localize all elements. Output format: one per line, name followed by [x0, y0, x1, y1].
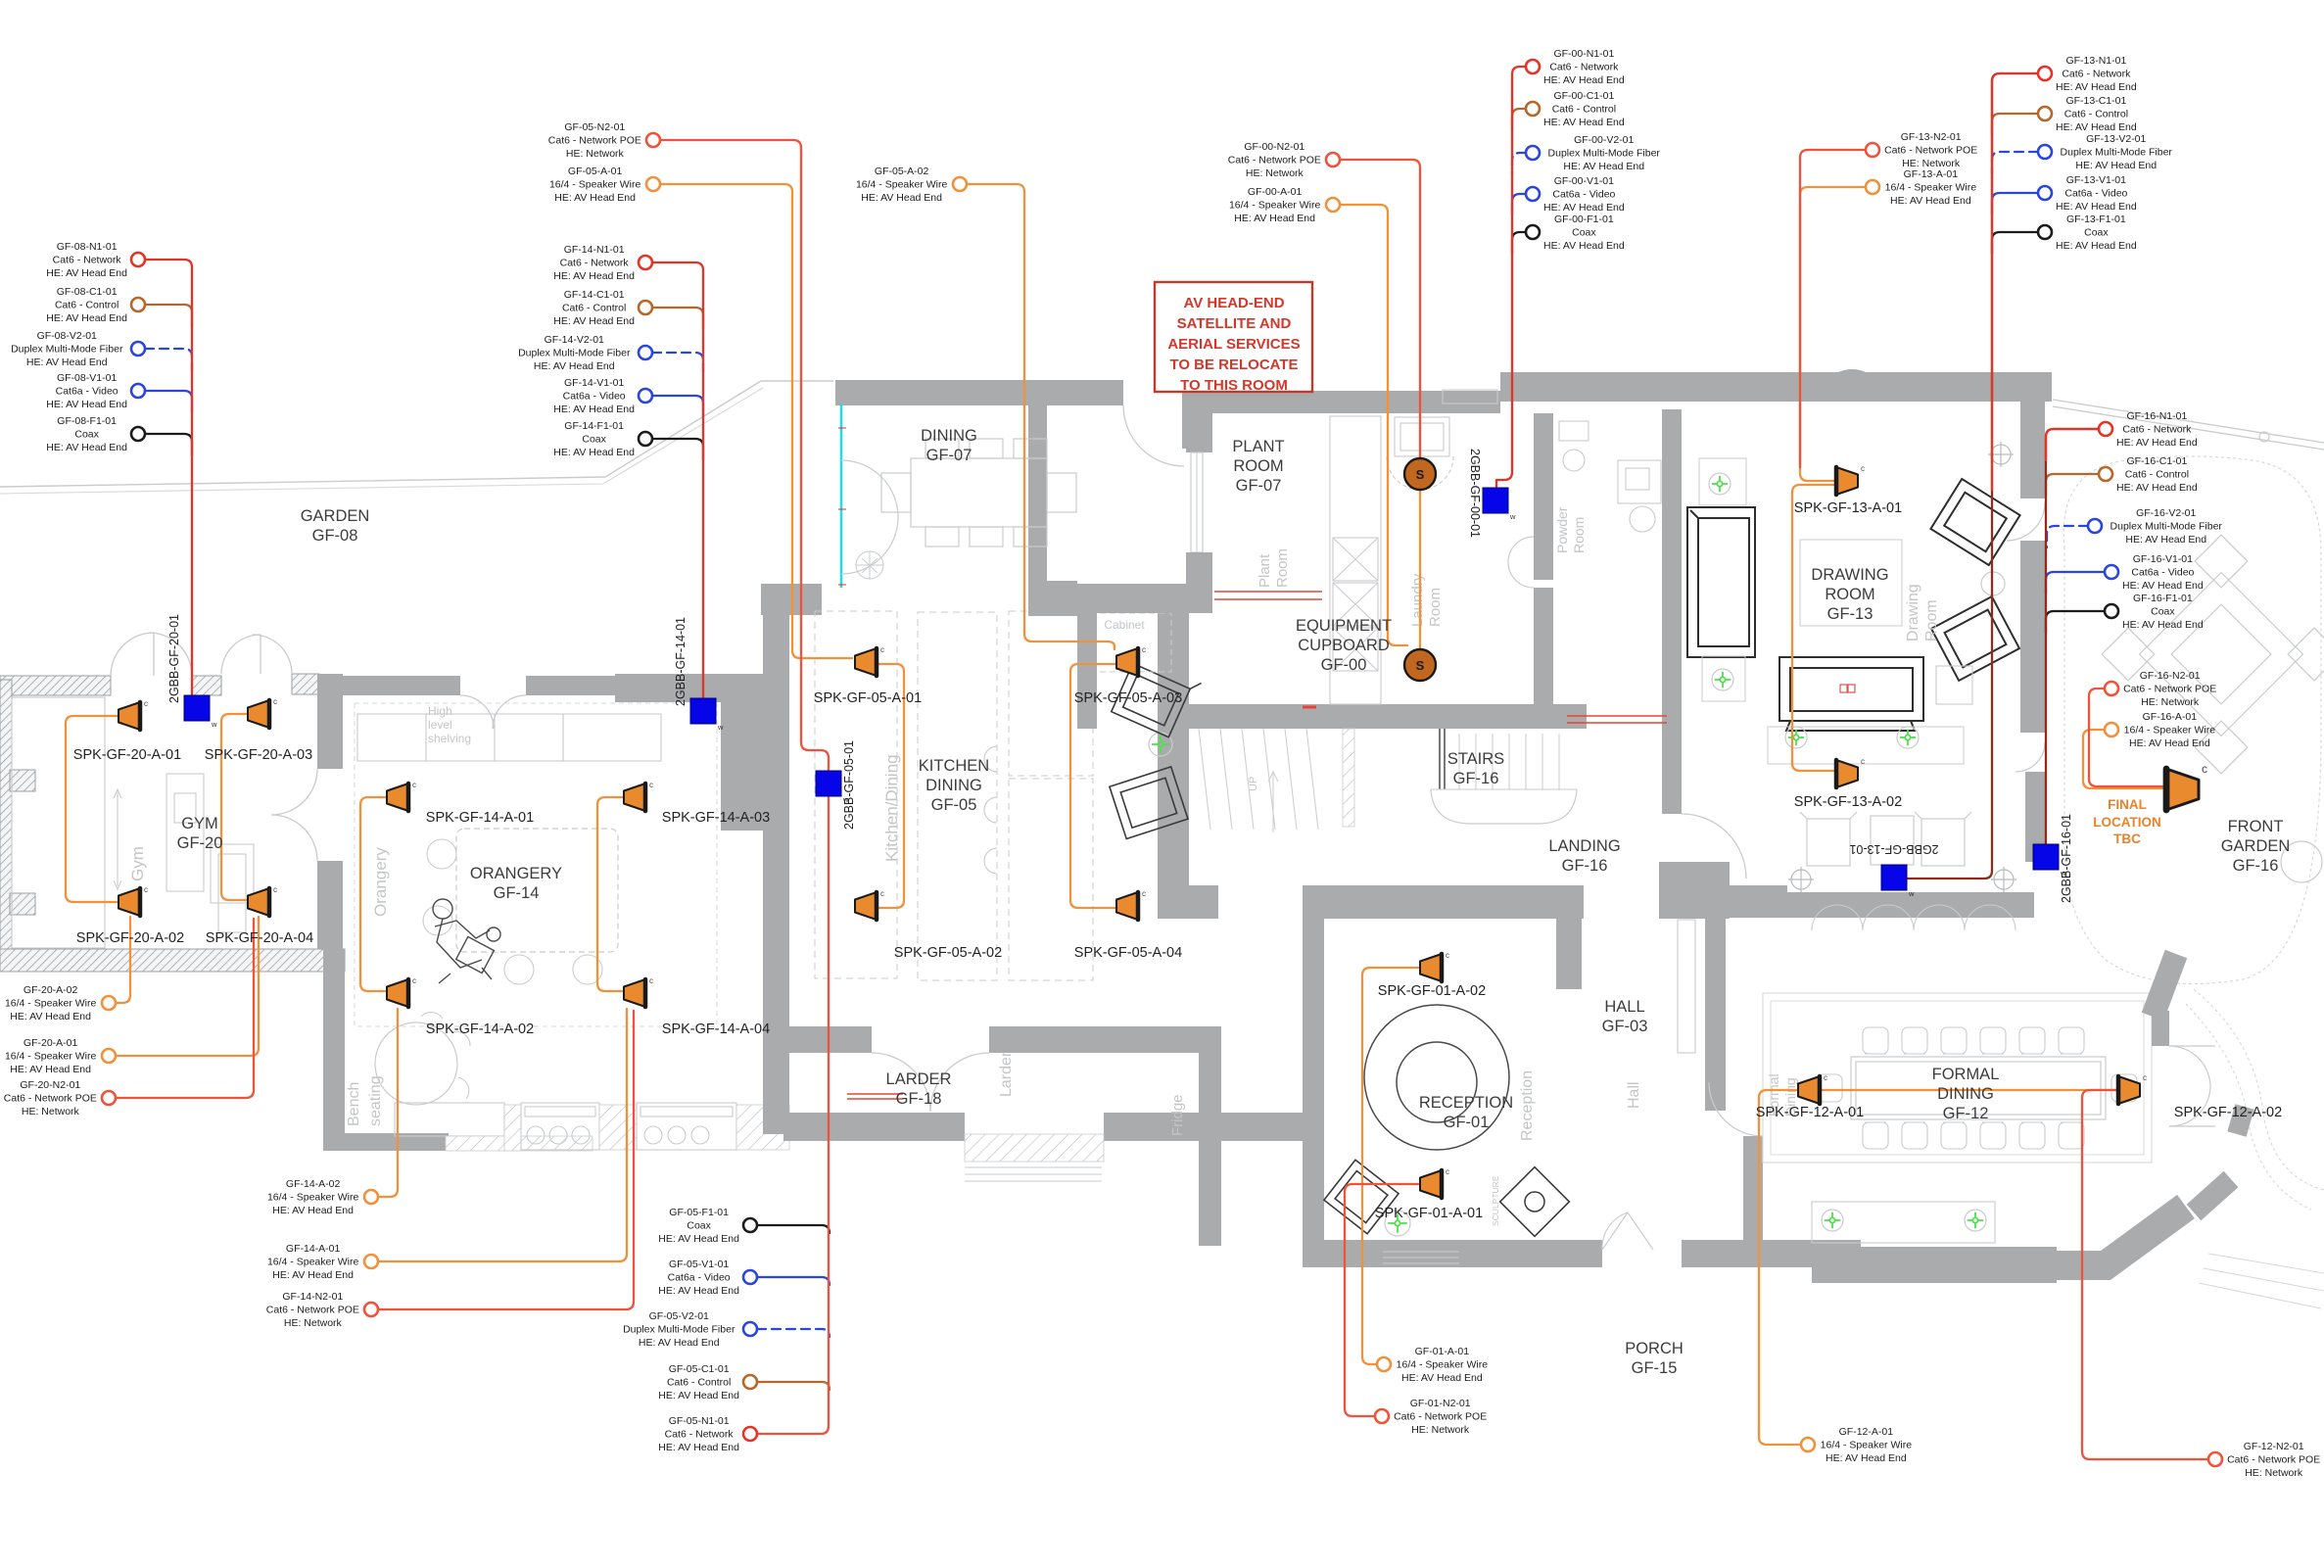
svg-text:GF-12-N2-01: GF-12-N2-01 — [2244, 1441, 2304, 1452]
svg-text:c: c — [273, 697, 277, 706]
svg-text:LARDER: LARDER — [886, 1070, 952, 1088]
svg-text:HE: AV Head End: HE: AV Head End — [554, 192, 636, 204]
svg-text:c: c — [1861, 464, 1865, 473]
svg-text:Powder: Powder — [1554, 506, 1570, 553]
svg-text:Reception: Reception — [1519, 1070, 1536, 1141]
svg-text:16/4 - Speaker Wire: 16/4 - Speaker Wire — [267, 1257, 359, 1268]
svg-text:LOCATION: LOCATION — [2093, 815, 2161, 830]
svg-text:GF-08-V2-01: GF-08-V2-01 — [37, 330, 97, 342]
svg-text:GF-00-C1-01: GF-00-C1-01 — [1553, 90, 1614, 102]
svg-text:GF-14-C1-01: GF-14-C1-01 — [564, 289, 625, 301]
svg-text:Room: Room — [1274, 548, 1291, 588]
svg-text:Bench: Bench — [346, 1082, 362, 1126]
svg-text:Cat6 - Network: Cat6 - Network — [53, 255, 122, 266]
svg-text:Duplex Multi-Mode Fiber: Duplex Multi-Mode Fiber — [2061, 147, 2173, 159]
svg-text:HE: AV Head End: HE: AV Head End — [534, 360, 615, 372]
svg-text:2GBB-GF-16-01: 2GBB-GF-16-01 — [2060, 814, 2073, 903]
svg-text:SPK-GF-12-A-01: SPK-GF-12-A-01 — [1756, 1105, 1864, 1120]
svg-text:HE: Network: HE: Network — [2141, 696, 2200, 708]
svg-text:TO BE RELOCATE: TO BE RELOCATE — [1169, 356, 1298, 373]
svg-text:GARDEN: GARDEN — [2221, 837, 2291, 855]
svg-text:SPK-GF-20-A-03: SPK-GF-20-A-03 — [205, 747, 312, 763]
svg-text:c: c — [649, 976, 653, 985]
svg-text:HE: AV Head End: HE: AV Head End — [1563, 161, 1644, 172]
svg-text:GF-12-A-01: GF-12-A-01 — [1839, 1426, 1894, 1438]
svg-text:GF-08: GF-08 — [312, 527, 358, 545]
svg-text:GF-14-A-01: GF-14-A-01 — [286, 1243, 341, 1255]
svg-text:Room: Room — [1571, 517, 1587, 553]
svg-text:16/4 - Speaker Wire: 16/4 - Speaker Wire — [1885, 182, 1977, 194]
svg-text:SPK-GF-05-A-01: SPK-GF-05-A-01 — [814, 690, 922, 706]
svg-text:RECEPTION: RECEPTION — [1419, 1094, 1513, 1112]
svg-text:HE: Network: HE: Network — [1411, 1424, 1470, 1436]
svg-text:GYM: GYM — [181, 815, 218, 832]
svg-text:Gym: Gym — [128, 846, 147, 881]
svg-text:HE: AV Head End: HE: AV Head End — [1826, 1452, 1907, 1464]
svg-text:EQUIPMENT: EQUIPMENT — [1296, 617, 1392, 635]
svg-text:16/4 - Speaker Wire: 16/4 - Speaker Wire — [1821, 1440, 1913, 1451]
svg-text:Cat6 - Network: Cat6 - Network — [1549, 62, 1619, 73]
svg-text:GF-05-N2-01: GF-05-N2-01 — [564, 121, 625, 133]
svg-text:GF-05-V2-01: GF-05-V2-01 — [649, 1310, 709, 1322]
svg-text:DRAWING: DRAWING — [1811, 566, 1888, 584]
svg-text:HE: AV Head End: HE: AV Head End — [2056, 81, 2137, 93]
svg-text:GF-13-V1-01: GF-13-V1-01 — [2066, 174, 2126, 186]
svg-text:GF-14-A-02: GF-14-A-02 — [286, 1178, 341, 1190]
svg-text:GF-13-N2-01: GF-13-N2-01 — [1901, 131, 1962, 143]
svg-text:Cat6 - Network: Cat6 - Network — [2062, 69, 2131, 80]
svg-text:Cat6 - Network POE: Cat6 - Network POE — [266, 1305, 359, 1316]
svg-text:GF-05: GF-05 — [931, 796, 977, 814]
svg-text:16/4 - Speaker Wire: 16/4 - Speaker Wire — [1397, 1359, 1489, 1371]
svg-text:GF-13-N1-01: GF-13-N1-01 — [2065, 55, 2126, 67]
svg-text:Cat6a - Video: Cat6a - Video — [56, 386, 119, 398]
svg-text:SPK-GF-20-A-01: SPK-GF-20-A-01 — [73, 747, 181, 763]
svg-text:GF-05-F1-01: GF-05-F1-01 — [669, 1207, 729, 1218]
svg-text:GF-18: GF-18 — [896, 1090, 942, 1108]
svg-text:16/4 - Speaker Wire: 16/4 - Speaker Wire — [5, 1051, 97, 1063]
svg-text:HE: AV Head End: HE: AV Head End — [2056, 240, 2137, 252]
svg-text:HE: AV Head End: HE: AV Head End — [553, 315, 635, 327]
svg-text:GF-20-A-02: GF-20-A-02 — [24, 984, 78, 996]
svg-text:GF-13-V2-01: GF-13-V2-01 — [2086, 133, 2146, 145]
svg-text:2GBB-GF-13-01: 2GBB-GF-13-01 — [1849, 842, 1938, 856]
svg-text:w: w — [211, 720, 217, 729]
svg-text:S: S — [1416, 467, 1425, 482]
svg-text:Duplex Multi-Mode Fiber: Duplex Multi-Mode Fiber — [623, 1324, 735, 1336]
svg-text:SPK-GF-05-A-04: SPK-GF-05-A-04 — [1074, 945, 1182, 961]
svg-text:Cat6a - Video: Cat6a - Video — [668, 1272, 731, 1284]
svg-text:HE: AV Head End: HE: AV Head End — [658, 1442, 739, 1453]
svg-text:HE: AV Head End: HE: AV Head End — [1543, 74, 1625, 86]
svg-text:HE: AV Head End: HE: AV Head End — [46, 267, 127, 279]
svg-text:S: S — [1416, 658, 1425, 673]
svg-text:Coax: Coax — [687, 1220, 711, 1232]
svg-text:Cat6a - Video: Cat6a - Video — [2131, 567, 2194, 579]
svg-text:HE: AV Head End: HE: AV Head End — [2075, 160, 2157, 171]
svg-text:AERIAL SERVICES: AERIAL SERVICES — [1167, 336, 1300, 353]
svg-text:GF-08-C1-01: GF-08-C1-01 — [57, 286, 118, 298]
svg-text:HE: AV Head End: HE: AV Head End — [1543, 202, 1625, 214]
svg-text:Cat6a - Video: Cat6a - Video — [2064, 188, 2127, 200]
svg-text:HE: AV Head End: HE: AV Head End — [2122, 619, 2204, 631]
svg-text:GF-01-N2-01: GF-01-N2-01 — [1410, 1398, 1471, 1409]
svg-text:Duplex Multi-Mode Fiber: Duplex Multi-Mode Fiber — [1548, 148, 1661, 160]
svg-text:Larder: Larder — [998, 1051, 1015, 1097]
svg-text:Coax: Coax — [2084, 227, 2109, 239]
svg-text:HE: AV Head End: HE: AV Head End — [10, 1064, 91, 1075]
svg-text:c: c — [880, 645, 884, 654]
svg-text:c: c — [2143, 1073, 2147, 1082]
svg-text:GF-14-F1-01: GF-14-F1-01 — [564, 420, 624, 432]
svg-text:GF-08-F1-01: GF-08-F1-01 — [57, 415, 117, 427]
svg-text:SPK-GF-20-A-02: SPK-GF-20-A-02 — [76, 930, 184, 946]
svg-text:SPK-GF-14-A-03: SPK-GF-14-A-03 — [662, 810, 770, 826]
svg-text:SPK-GF-13-A-01: SPK-GF-13-A-01 — [1794, 500, 1902, 516]
svg-text:Room: Room — [1427, 588, 1444, 627]
svg-text:Cat6 - Control: Cat6 - Control — [1552, 104, 1616, 116]
svg-text:HE: AV Head End: HE: AV Head End — [658, 1285, 739, 1297]
svg-text:Cabinet: Cabinet — [1104, 618, 1145, 632]
svg-text:DINING: DINING — [921, 427, 977, 445]
svg-text:c: c — [1446, 951, 1449, 960]
svg-text:c: c — [1446, 1167, 1449, 1176]
svg-text:GF-00-A-01: GF-00-A-01 — [1248, 186, 1303, 198]
svg-text:Hall: Hall — [1626, 1081, 1642, 1109]
svg-text:SPK-GF-05-A-02: SPK-GF-05-A-02 — [894, 945, 1002, 961]
svg-text:GF-05-C1-01: GF-05-C1-01 — [669, 1363, 730, 1375]
svg-text:GF-05-A-01: GF-05-A-01 — [568, 166, 623, 177]
svg-text:GF-03: GF-03 — [1602, 1018, 1648, 1035]
svg-text:LANDING: LANDING — [1548, 837, 1620, 855]
svg-text:Cat6a - Video: Cat6a - Video — [563, 391, 626, 403]
svg-text:GF-00-F1-01: GF-00-F1-01 — [1554, 214, 1614, 225]
svg-text:Coax: Coax — [582, 434, 606, 446]
svg-text:Drawing: Drawing — [1905, 584, 1921, 641]
svg-text:HE: AV Head End: HE: AV Head End — [2125, 534, 2206, 546]
svg-text:GF-16-V1-01: GF-16-V1-01 — [2133, 553, 2193, 565]
svg-text:Kitchen/Dining: Kitchen/Dining — [882, 754, 901, 862]
svg-text:DINING: DINING — [925, 777, 982, 794]
svg-text:2GBB-GF-14-01: 2GBB-GF-14-01 — [674, 617, 688, 706]
svg-text:HE: AV Head End: HE: AV Head End — [639, 1337, 720, 1349]
svg-text:HE: AV Head End: HE: AV Head End — [1890, 195, 1971, 207]
svg-text:c: c — [144, 699, 148, 708]
svg-text:SPK-GF-14-A-02: SPK-GF-14-A-02 — [426, 1022, 534, 1037]
svg-text:HE: Network: HE: Network — [284, 1317, 343, 1329]
svg-text:SPK-GF-01-A-01: SPK-GF-01-A-01 — [1375, 1206, 1483, 1221]
svg-text:GF-16: GF-16 — [2233, 857, 2279, 875]
svg-text:GF-01-A-01: GF-01-A-01 — [1415, 1346, 1470, 1357]
svg-text:GF-01: GF-01 — [1444, 1114, 1490, 1131]
svg-text:c: c — [1861, 757, 1865, 766]
svg-text:HE: AV Head End: HE: AV Head End — [2122, 580, 2204, 592]
svg-text:shelving: shelving — [428, 732, 471, 745]
svg-text:c: c — [1824, 1073, 1827, 1082]
svg-text:HALL: HALL — [1604, 998, 1644, 1016]
svg-text:GF-07: GF-07 — [926, 447, 972, 464]
svg-text:GF-20: GF-20 — [177, 834, 223, 852]
svg-text:w: w — [1509, 512, 1516, 521]
svg-text:Orangery: Orangery — [371, 847, 390, 917]
svg-text:CUPBOARD: CUPBOARD — [1298, 637, 1390, 654]
svg-text:SCULPTURE: SCULPTURE — [1491, 1175, 1500, 1226]
svg-text:GF-20-N2-01: GF-20-N2-01 — [20, 1079, 80, 1091]
svg-text:GF-16-A-01: GF-16-A-01 — [2143, 711, 2198, 723]
svg-text:Coax: Coax — [1572, 227, 1596, 239]
svg-text:ORANGERY: ORANGERY — [470, 865, 562, 882]
svg-text:Cat6 - Network POE: Cat6 - Network POE — [4, 1093, 97, 1105]
svg-text:Cat6 - Network: Cat6 - Network — [665, 1429, 735, 1441]
svg-text:16/4 - Speaker Wire: 16/4 - Speaker Wire — [267, 1192, 359, 1204]
svg-text:16/4 - Speaker Wire: 16/4 - Speaker Wire — [1229, 200, 1321, 212]
svg-text:seating: seating — [367, 1075, 384, 1126]
svg-text:HE: AV Head End: HE: AV Head End — [272, 1205, 354, 1216]
svg-text:SATELLITE AND: SATELLITE AND — [1177, 315, 1292, 332]
svg-text:Cat6 - Network POE: Cat6 - Network POE — [2123, 684, 2216, 695]
svg-text:Room: Room — [1923, 599, 1940, 641]
svg-text:c: c — [412, 976, 416, 985]
svg-text:Cat6 - Control: Cat6 - Control — [562, 303, 626, 314]
svg-text:2GBB-GF-05-01: 2GBB-GF-05-01 — [842, 740, 856, 830]
svg-text:HE: AV Head End: HE: AV Head End — [553, 404, 635, 415]
svg-text:GF-16-C1-01: GF-16-C1-01 — [2126, 455, 2187, 467]
svg-text:Fridge: Fridge — [1169, 1094, 1186, 1136]
svg-text:GF-00-V1-01: GF-00-V1-01 — [1554, 175, 1614, 187]
svg-text:GF-00-N2-01: GF-00-N2-01 — [1244, 141, 1304, 153]
svg-text:c: c — [649, 781, 653, 789]
svg-text:GARDEN: GARDEN — [301, 507, 370, 525]
svg-text:16/4 - Speaker Wire: 16/4 - Speaker Wire — [2124, 725, 2216, 736]
svg-text:GF-14-N2-01: GF-14-N2-01 — [282, 1291, 343, 1303]
svg-text:c: c — [880, 889, 884, 898]
svg-text:GF-14-N1-01: GF-14-N1-01 — [564, 244, 625, 256]
svg-text:GF-15: GF-15 — [1632, 1359, 1678, 1377]
svg-text:DINING: DINING — [1937, 1085, 1994, 1103]
svg-text:HE: AV Head End: HE: AV Head End — [1543, 117, 1625, 128]
svg-text:GF-00-V2-01: GF-00-V2-01 — [1574, 134, 1634, 146]
svg-text:GF-16-N2-01: GF-16-N2-01 — [2140, 670, 2201, 682]
svg-text:HE: AV Head End: HE: AV Head End — [658, 1233, 739, 1245]
svg-text:HE: Network: HE: Network — [1246, 167, 1304, 179]
svg-text:16/4 - Speaker Wire: 16/4 - Speaker Wire — [549, 179, 641, 191]
svg-text:HE: AV Head End: HE: AV Head End — [2056, 201, 2137, 213]
svg-text:FRONT: FRONT — [2228, 818, 2284, 835]
svg-text:HE: AV Head End: HE: AV Head End — [553, 447, 635, 458]
svg-text:SPK-GF-13-A-02: SPK-GF-13-A-02 — [1794, 794, 1902, 810]
svg-text:High: High — [428, 704, 452, 718]
svg-text:Cat6 - Network POE: Cat6 - Network POE — [548, 135, 641, 147]
svg-text:SPK-GF-20-A-04: SPK-GF-20-A-04 — [206, 930, 313, 946]
svg-text:Duplex Multi-Mode Fiber: Duplex Multi-Mode Fiber — [518, 348, 631, 359]
svg-text:GF-16: GF-16 — [1453, 770, 1499, 787]
svg-text:2GBB-GF-00-01: 2GBB-GF-00-01 — [1468, 449, 1482, 538]
svg-text:Cat6 - Control: Cat6 - Control — [55, 300, 119, 311]
svg-text:ROOM: ROOM — [1233, 457, 1283, 475]
svg-text:w: w — [717, 723, 724, 732]
svg-text:HE: AV Head End: HE: AV Head End — [1543, 240, 1625, 252]
svg-text:SPK-GF-05-A-03: SPK-GF-05-A-03 — [1074, 690, 1182, 706]
svg-text:Cat6 - Network: Cat6 - Network — [2122, 424, 2192, 436]
svg-text:GF-14-V2-01: GF-14-V2-01 — [545, 334, 604, 346]
svg-text:Duplex Multi-Mode Fiber: Duplex Multi-Mode Fiber — [11, 344, 123, 356]
svg-text:HE: Network: HE: Network — [566, 148, 625, 160]
svg-text:16/4 - Speaker Wire: 16/4 - Speaker Wire — [856, 179, 948, 191]
svg-text:c: c — [273, 885, 277, 894]
svg-text:Cat6 - Network POE: Cat6 - Network POE — [1884, 145, 1977, 157]
svg-text:GF-16-N1-01: GF-16-N1-01 — [2126, 410, 2187, 422]
svg-text:HE: AV Head End: HE: AV Head End — [46, 312, 127, 324]
svg-text:PLANT: PLANT — [1232, 438, 1284, 455]
svg-text:GF-05-A-02: GF-05-A-02 — [875, 166, 929, 177]
svg-text:GF-13: GF-13 — [1827, 605, 1873, 623]
svg-text:HE: AV Head End: HE: AV Head End — [1401, 1372, 1483, 1384]
svg-text:KITCHEN: KITCHEN — [919, 757, 989, 775]
svg-text:GF-05-V1-01: GF-05-V1-01 — [669, 1259, 729, 1270]
svg-text:SPK-GF-01-A-02: SPK-GF-01-A-02 — [1378, 983, 1486, 999]
svg-text:HE: AV Head End: HE: AV Head End — [1234, 213, 1315, 224]
svg-text:HE: AV Head End: HE: AV Head End — [26, 356, 108, 368]
svg-text:GF-16-V2-01: GF-16-V2-01 — [2136, 507, 2196, 519]
svg-text:Plant: Plant — [1257, 553, 1273, 588]
svg-text:HE: AV Head End: HE: AV Head End — [2056, 121, 2137, 133]
svg-text:HE: AV Head End: HE: AV Head End — [2116, 482, 2198, 494]
svg-text:AV HEAD-END: AV HEAD-END — [1183, 295, 1284, 311]
svg-text:Cat6a - Video: Cat6a - Video — [1552, 189, 1615, 201]
svg-text:level: level — [428, 718, 452, 732]
svg-text:Cat6 - Control: Cat6 - Control — [667, 1377, 731, 1389]
svg-text:Coax: Coax — [74, 429, 99, 441]
svg-text:GF-20-A-01: GF-20-A-01 — [24, 1037, 78, 1049]
svg-text:2GBB-GF-20-01: 2GBB-GF-20-01 — [167, 614, 181, 703]
svg-text:GF-12: GF-12 — [1943, 1105, 1989, 1122]
svg-text:HE: Network: HE: Network — [22, 1106, 80, 1117]
svg-text:GF-00: GF-00 — [1321, 656, 1367, 674]
svg-text:FORMAL: FORMAL — [1932, 1066, 2000, 1083]
svg-text:HE: AV Head End: HE: AV Head End — [2116, 437, 2198, 449]
svg-text:HE: AV Head End: HE: AV Head End — [46, 442, 127, 453]
svg-text:Duplex Multi-Mode Fiber: Duplex Multi-Mode Fiber — [2111, 521, 2223, 533]
svg-text:FINAL: FINAL — [2108, 797, 2147, 812]
svg-text:GF-16-F1-01: GF-16-F1-01 — [2133, 593, 2193, 604]
svg-text:SPK-GF-12-A-02: SPK-GF-12-A-02 — [2174, 1105, 2282, 1120]
svg-text:HE: AV Head End: HE: AV Head End — [10, 1011, 91, 1022]
svg-text:SPK-GF-14-A-01: SPK-GF-14-A-01 — [426, 810, 534, 826]
svg-text:Laundry: Laundry — [1409, 573, 1426, 627]
svg-text:GF-14-V1-01: GF-14-V1-01 — [564, 377, 624, 389]
svg-text:SPK-GF-14-A-04: SPK-GF-14-A-04 — [662, 1022, 770, 1037]
svg-text:HE: AV Head End: HE: AV Head End — [658, 1390, 739, 1402]
svg-text:Cat6 - Control: Cat6 - Control — [2125, 469, 2189, 481]
svg-text:GF-14: GF-14 — [494, 884, 540, 902]
svg-text:GF-16: GF-16 — [1562, 857, 1608, 875]
svg-text:w: w — [1908, 889, 1915, 898]
svg-text:Cat6 - Control: Cat6 - Control — [2064, 109, 2128, 120]
svg-text:c: c — [2202, 762, 2207, 776]
svg-text:GF-05-N1-01: GF-05-N1-01 — [669, 1415, 730, 1427]
svg-text:Cat6 - Network: Cat6 - Network — [560, 258, 630, 269]
svg-text:GF-00-N1-01: GF-00-N1-01 — [1553, 48, 1614, 60]
svg-text:Cat6 - Network POE: Cat6 - Network POE — [2227, 1454, 2320, 1466]
svg-text:HE: AV Head End: HE: AV Head End — [553, 270, 635, 282]
svg-text:Cat6 - Network POE: Cat6 - Network POE — [1394, 1411, 1487, 1423]
svg-text:GF-13-C1-01: GF-13-C1-01 — [2065, 95, 2126, 107]
svg-text:TBC: TBC — [2113, 832, 2141, 846]
svg-text:GF-13-F1-01: GF-13-F1-01 — [2066, 214, 2126, 225]
svg-text:c: c — [1142, 645, 1146, 654]
svg-text:ROOM: ROOM — [1825, 586, 1874, 603]
svg-text:c: c — [412, 781, 416, 789]
svg-text:HE: AV Head End: HE: AV Head End — [46, 399, 127, 410]
svg-text:GF-08-V1-01: GF-08-V1-01 — [57, 372, 117, 384]
svg-text:GF-13-A-01: GF-13-A-01 — [1904, 168, 1959, 180]
svg-text:HE: AV Head End: HE: AV Head End — [272, 1269, 354, 1281]
svg-text:UP: UP — [1248, 777, 1259, 791]
svg-text:GF-08-N1-01: GF-08-N1-01 — [57, 241, 118, 253]
svg-text:STAIRS: STAIRS — [1447, 750, 1504, 768]
svg-text:16/4 - Speaker Wire: 16/4 - Speaker Wire — [5, 998, 97, 1010]
svg-text:HE: Network: HE: Network — [2245, 1467, 2303, 1479]
svg-text:GF-07: GF-07 — [1236, 477, 1282, 495]
svg-text:c: c — [144, 885, 148, 894]
svg-text:Coax: Coax — [2151, 606, 2175, 618]
svg-text:TO THIS ROOM: TO THIS ROOM — [1180, 377, 1288, 394]
svg-text:HE: AV Head End: HE: AV Head End — [2129, 737, 2210, 749]
svg-text:Cat6 - Network POE: Cat6 - Network POE — [1228, 155, 1321, 166]
svg-text:HE: AV Head End: HE: AV Head End — [861, 192, 942, 204]
svg-text:c: c — [1142, 889, 1146, 898]
svg-text:PORCH: PORCH — [1625, 1340, 1684, 1357]
